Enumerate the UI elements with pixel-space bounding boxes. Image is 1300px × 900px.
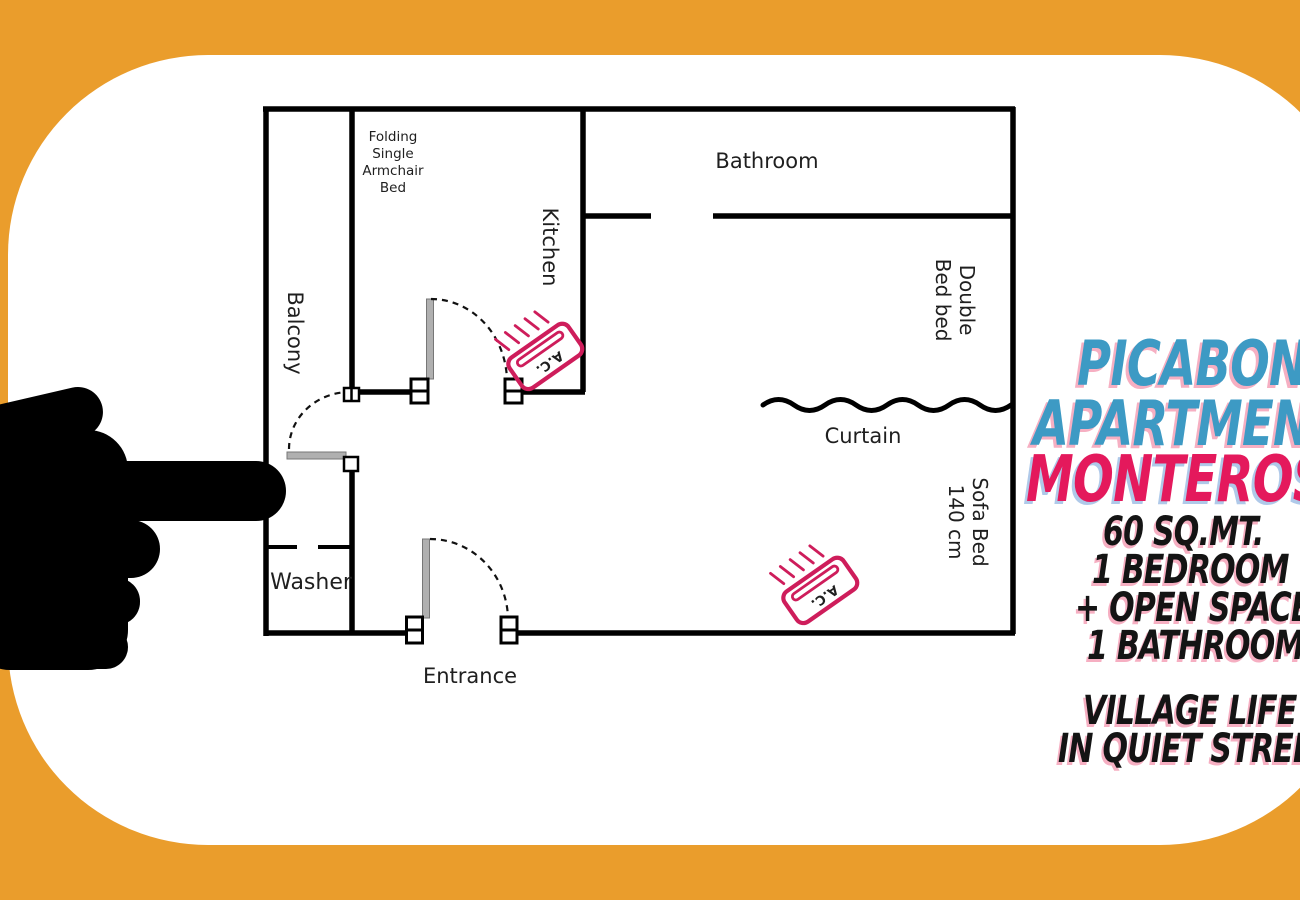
double-bed-label: Double Bed bed bbox=[931, 259, 979, 342]
walls bbox=[263, 107, 1015, 636]
balcony-door-arc bbox=[289, 392, 350, 449]
svg-text:Sofa Bed: Sofa Bed bbox=[968, 477, 992, 566]
detail-bedroom: 1 BEDROOM bbox=[1092, 550, 1289, 590]
wall-lines bbox=[263, 107, 1015, 636]
entrance-door-leaf bbox=[423, 539, 430, 618]
svg-text:Bed bed: Bed bed bbox=[931, 259, 955, 342]
curtain-line bbox=[763, 400, 1011, 411]
poster-canvas: { "palette": { "background_orange": "#EA… bbox=[0, 0, 1300, 900]
balcony-label: Balcony bbox=[283, 291, 307, 374]
tagline-line-2: IN QUIET STREET bbox=[1058, 729, 1300, 769]
hand-index-finger bbox=[28, 461, 286, 521]
svg-text:Single: Single bbox=[372, 146, 414, 162]
title-line-3: MONTEROSSO bbox=[1026, 450, 1300, 510]
kitchen-door-leaf bbox=[427, 299, 434, 379]
detail-bathroom: 1 BATHROOM bbox=[1087, 626, 1300, 666]
folding-bed-label: Folding Single Armchair Bed bbox=[362, 129, 424, 196]
pointing-hand-icon bbox=[0, 382, 286, 670]
hand-pinky-finger bbox=[48, 625, 128, 669]
svg-text:140 cm: 140 cm bbox=[944, 484, 968, 559]
entrance-label: Entrance bbox=[423, 664, 517, 688]
ac-unit-icon-living: A.C. bbox=[766, 535, 860, 626]
svg-text:Double: Double bbox=[955, 265, 979, 336]
sofa-bed-label: Sofa Bed 140 cm bbox=[944, 477, 992, 566]
detail-area: 60 SQ.MT. bbox=[1103, 512, 1264, 552]
tagline-line-1: VILLAGE LIFE bbox=[1083, 691, 1297, 731]
ac-label: A.C. bbox=[533, 347, 566, 376]
svg-text:Bed: Bed bbox=[380, 180, 406, 196]
hand-ring-finger bbox=[48, 578, 140, 625]
curtain-label: Curtain bbox=[825, 424, 902, 448]
door-jambs bbox=[344, 379, 522, 643]
ac-label: A.C. bbox=[808, 581, 841, 610]
entrance-door-arc bbox=[430, 539, 508, 620]
balcony-door-leaf bbox=[287, 452, 346, 459]
svg-text:Folding: Folding bbox=[369, 129, 418, 145]
svg-text:Armchair: Armchair bbox=[362, 163, 424, 179]
hand-middle-finger bbox=[52, 520, 160, 578]
svg-text:Kitchen: Kitchen bbox=[538, 208, 562, 287]
kitchen-label: Kitchen bbox=[538, 208, 562, 287]
svg-text:Balcony: Balcony bbox=[283, 291, 307, 374]
detail-open-space: + OPEN SPACE bbox=[1075, 588, 1300, 628]
title-line-1: PICABONE bbox=[1077, 334, 1300, 394]
washer-label: Washer bbox=[270, 570, 353, 595]
bathroom-label: Bathroom bbox=[715, 149, 818, 173]
